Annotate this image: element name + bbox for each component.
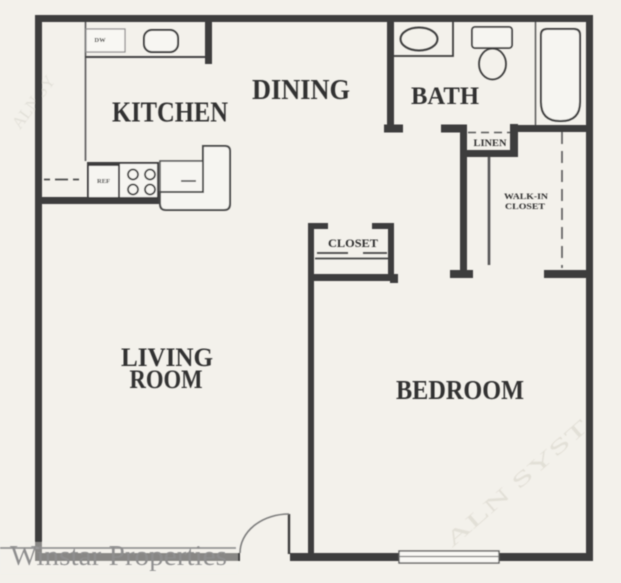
svg-text:ROOM: ROOM [130, 365, 203, 394]
svg-text:DW: DW [94, 37, 106, 44]
svg-text:LINEN: LINEN [474, 138, 508, 148]
svg-text:BEDROOM: BEDROOM [396, 375, 524, 405]
svg-text:KITCHEN: KITCHEN [112, 98, 228, 129]
svg-text:WALK-IN: WALK-IN [504, 192, 548, 201]
svg-text:Winstar Properties: Winstar Properties [10, 541, 227, 572]
svg-text:BATH: BATH [411, 83, 480, 110]
svg-text:REF: REF [97, 178, 110, 185]
svg-text:CLOSET: CLOSET [328, 236, 378, 250]
svg-text:DINING: DINING [252, 75, 350, 106]
svg-text:CLOSET: CLOSET [505, 202, 546, 211]
